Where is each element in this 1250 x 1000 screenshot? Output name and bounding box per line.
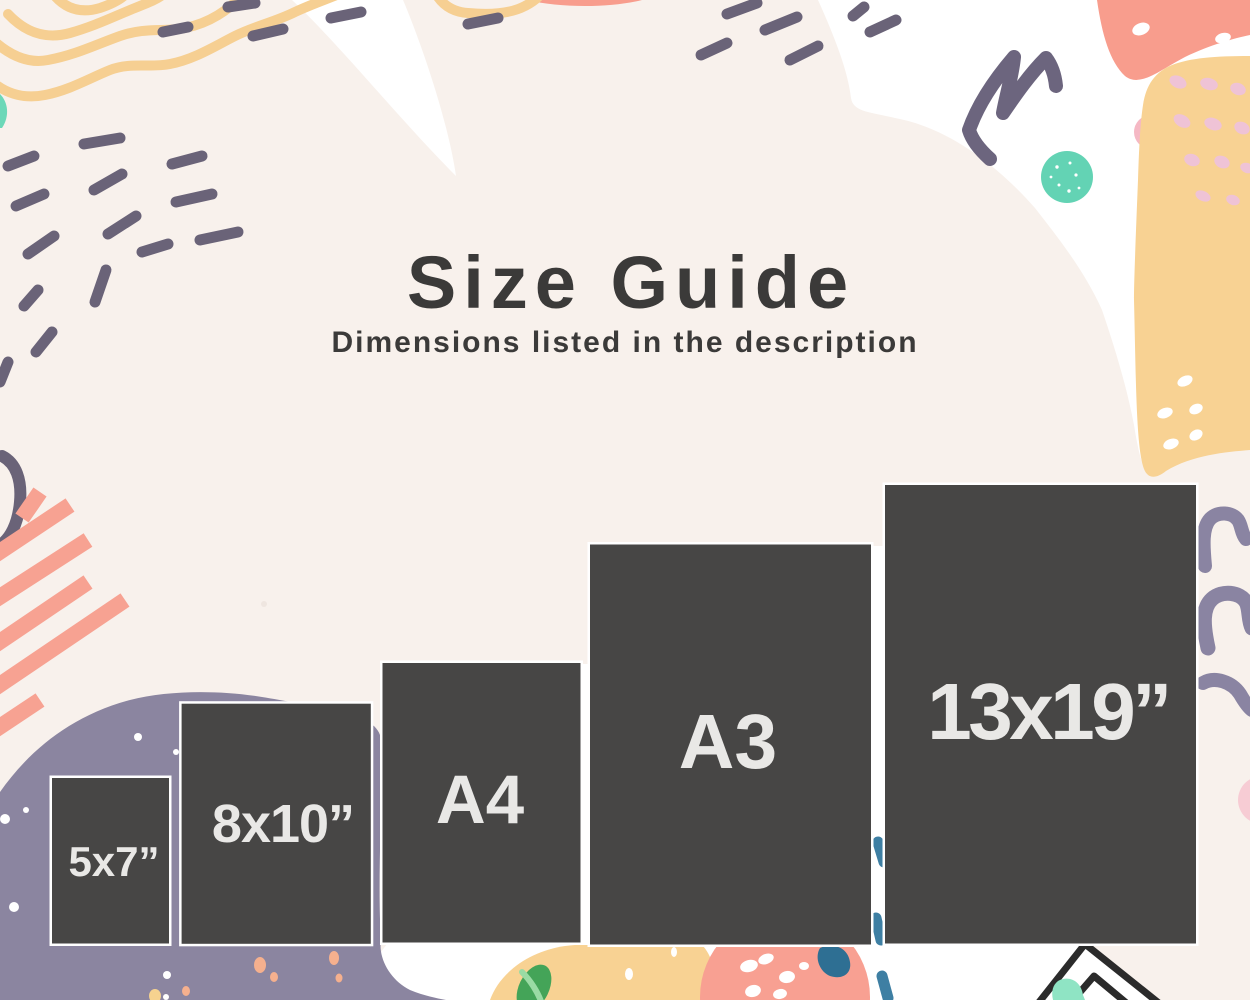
svg-text:A4: A4 <box>436 761 524 838</box>
svg-text:5x7”: 5x7” <box>68 838 159 885</box>
svg-text:13x19”: 13x19” <box>927 667 1168 756</box>
svg-text:Size Guide: Size Guide <box>407 241 855 324</box>
svg-text:A3: A3 <box>679 699 777 785</box>
svg-text:Dimensions listed in the descr: Dimensions listed in the description <box>331 326 918 359</box>
svg-text:8x10”: 8x10” <box>212 794 354 854</box>
